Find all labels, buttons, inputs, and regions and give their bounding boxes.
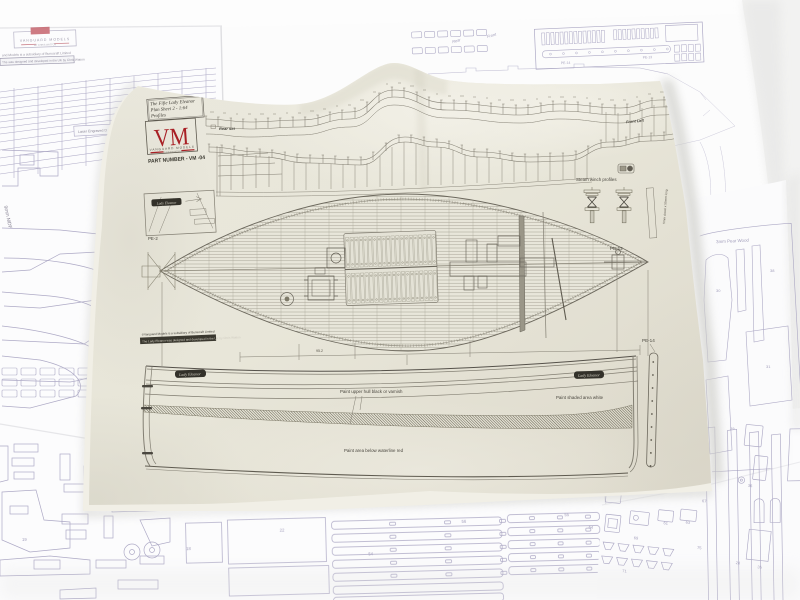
- svg-text:PE-14: PE-14: [642, 338, 655, 343]
- svg-text:31: 31: [766, 364, 771, 369]
- svg-text:PE-14: PE-14: [561, 61, 571, 65]
- svg-text:Rear set: Rear set: [219, 126, 235, 131]
- svg-text:Steam winch profiles: Steam winch profiles: [576, 177, 617, 182]
- svg-text:18: 18: [186, 546, 191, 551]
- svg-text:38: 38: [770, 268, 775, 273]
- svg-text:22: 22: [280, 528, 285, 533]
- svg-text:19: 19: [22, 537, 27, 542]
- svg-text:PE-13: PE-13: [643, 55, 653, 59]
- svg-text:30: 30: [716, 288, 721, 293]
- svg-text:Lady Eleanor: Lady Eleanor: [577, 372, 600, 378]
- svg-text:55: 55: [564, 512, 569, 517]
- svg-text:54: 54: [368, 551, 373, 556]
- svg-text:95.2: 95.2: [316, 349, 323, 353]
- svg-text:Paint shaded area white: Paint shaded area white: [556, 395, 604, 400]
- svg-text:PE-12: PE-12: [610, 246, 623, 251]
- svg-text:Paint upper hull black or varn: Paint upper hull black or varnish: [340, 389, 403, 394]
- svg-text:Lady Eleanor: Lady Eleanor: [178, 371, 201, 377]
- svg-text:Paint area below waterline red: Paint area below waterline red: [344, 448, 404, 453]
- svg-text:PE-2: PE-2: [148, 236, 158, 241]
- svg-text:56: 56: [461, 519, 466, 524]
